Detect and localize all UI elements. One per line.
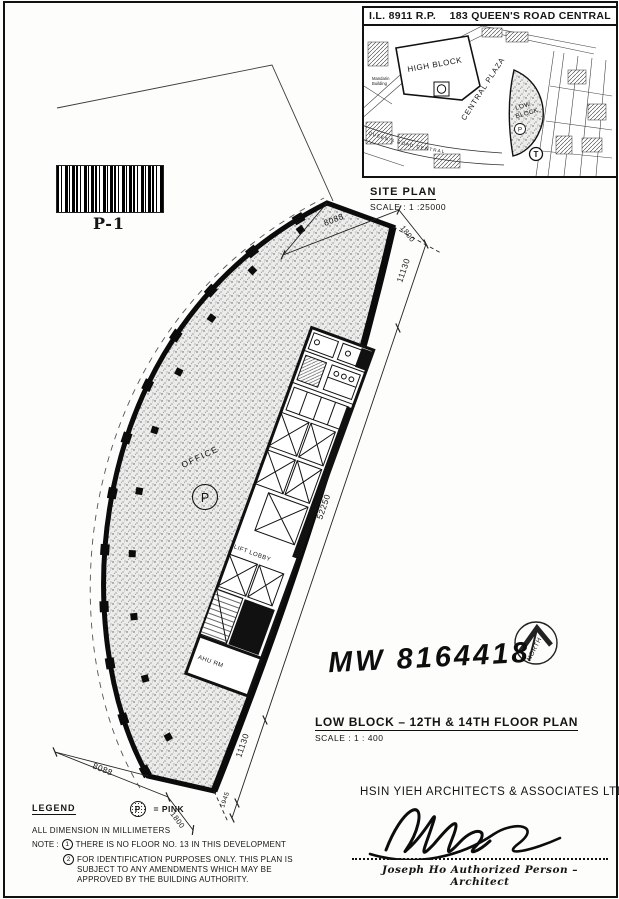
svg-text:P: P [518, 128, 522, 134]
note1-number-icon: 1 [62, 839, 73, 850]
site-plan-map: Mandarin Building HIGH BLOCK CENTRAL PLA… [364, 26, 612, 176]
dim-top-offset: 1800 [398, 224, 417, 244]
barcode-label: P-1 [56, 214, 162, 233]
plan-title: LOW BLOCK – 12TH & 14TH FLOOR PLAN [315, 715, 578, 731]
signature-line [352, 858, 608, 860]
lot-number: I.L. 8911 R.P. [369, 10, 436, 22]
legend-heading: LEGEND [32, 803, 76, 815]
dimension-units-note: ALL DIMENSION IN MILLIMETERS [32, 826, 315, 835]
site-plan-title: SITE PLAN [370, 186, 436, 200]
site-plan-header: I.L. 8911 R.P. 183 QUEEN'S ROAD CENTRAL [364, 8, 616, 26]
pink-legend-symbol: P [130, 801, 146, 817]
note2-text: FOR IDENTIFICATION PURPOSES ONLY. THIS P… [77, 855, 315, 885]
plan-title-block: LOW BLOCK – 12TH & 14TH FLOOR PLAN SCALE… [315, 713, 578, 743]
note-label: NOTE : [32, 840, 59, 849]
circle-t-icon: T [530, 148, 543, 161]
note2-number-icon: 2 [63, 854, 74, 865]
plan-scale: SCALE : 1 : 400 [315, 733, 578, 743]
svg-text:T: T [534, 150, 539, 159]
site-plan-inset: I.L. 8911 R.P. 183 QUEEN'S ROAD CENTRAL [362, 6, 618, 178]
dim-right-upper: 11130 [394, 257, 412, 284]
signer-name: Joseph Ho Authorized Person – Architect [352, 864, 608, 888]
site-plan-scale: SCALE : 1 :25000 [370, 202, 446, 212]
barcode-block: P-1 [56, 165, 162, 233]
note1-text: THERE IS NO FLOOR NO. 13 IN THIS DEVELOP… [76, 840, 286, 849]
legend-pink-text: = PINK [154, 804, 185, 814]
site-address: 183 QUEEN'S ROAD CENTRAL [450, 10, 611, 22]
high-block-shape: HIGH BLOCK [396, 36, 480, 100]
svg-text:P: P [201, 491, 209, 505]
scanned-drawing-page: LIFT LOBBY AHU RM OFFICE P [0, 0, 619, 899]
site-plan-caption: SITE PLAN SCALE : 1 :25000 [370, 182, 446, 212]
signature [366, 794, 610, 860]
building-outline [104, 203, 393, 791]
barcode-image [56, 165, 164, 213]
dim-bottom-width: 8088 [91, 761, 114, 778]
legend-block: LEGEND P = PINK ALL DIMENSION IN MILLIME… [32, 801, 315, 885]
